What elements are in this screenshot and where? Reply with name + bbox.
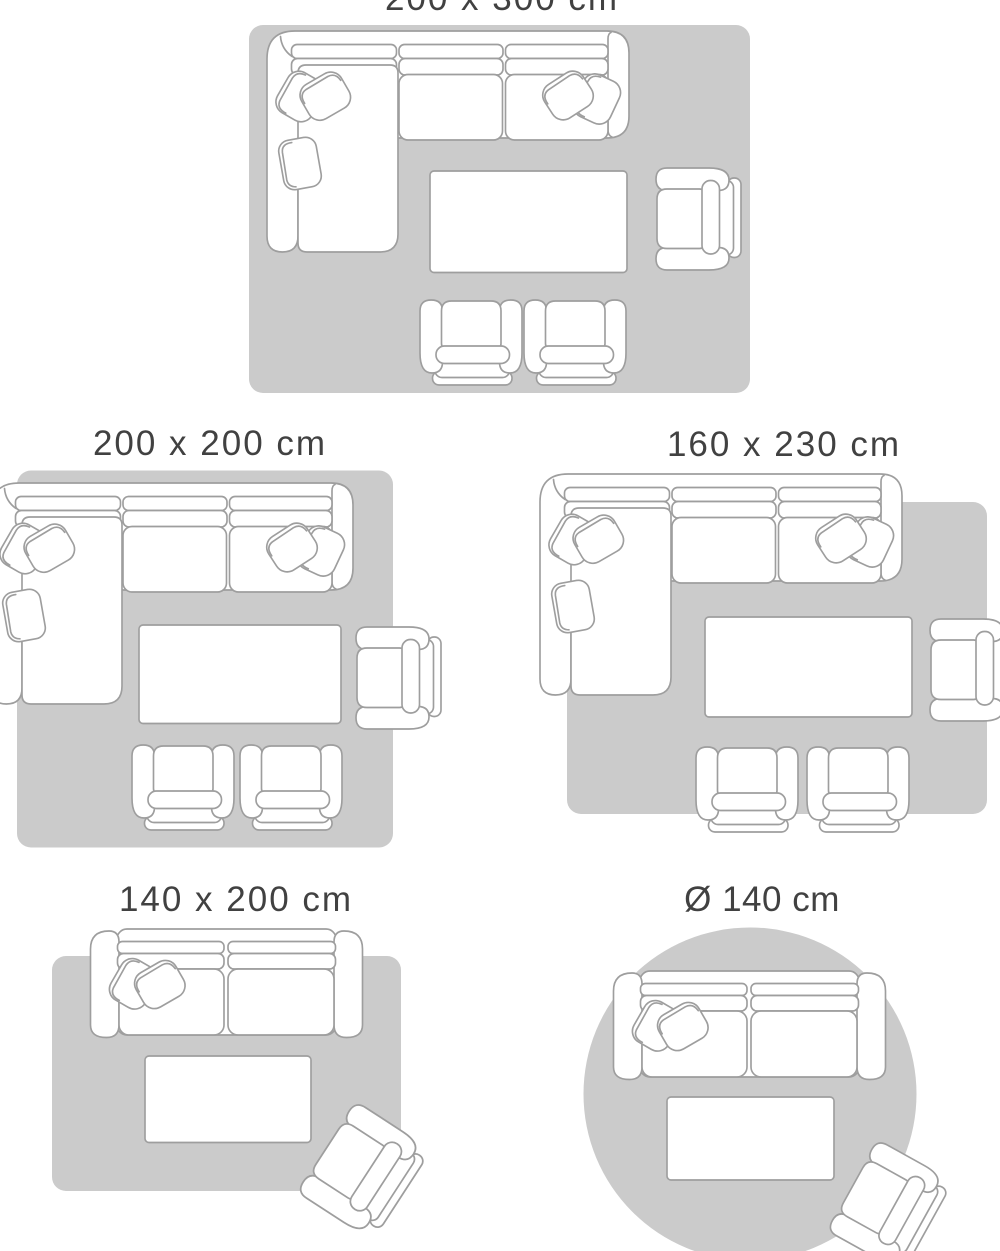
svg-text:Ø 140 cm: Ø 140 cm bbox=[684, 880, 840, 919]
svg-text:200 x 300 cm: 200 x 300 cm bbox=[385, 0, 619, 18]
svg-text:160 x 230 cm: 160 x 230 cm bbox=[667, 425, 901, 464]
svg-text:200 x 200 cm: 200 x 200 cm bbox=[93, 424, 327, 463]
svg-text:140 x 200 cm: 140 x 200 cm bbox=[119, 880, 353, 919]
